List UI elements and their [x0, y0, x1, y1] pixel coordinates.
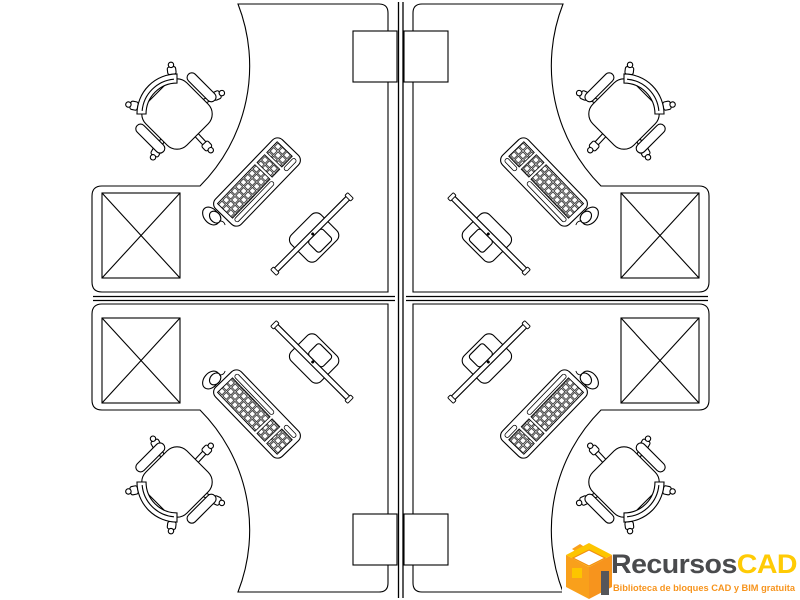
- workstation-top-right: [404, 4, 709, 292]
- workstation-bottom-left: [92, 304, 397, 592]
- brand-text: RecursosCAD: [611, 549, 797, 579]
- recursoscad-logo: RecursosCAD Biblioteca de bloques CAD y …: [562, 542, 800, 600]
- brand-text-primary: Recursos: [611, 549, 737, 579]
- logo-tagline: Biblioteca de bloques CAD y BIM gratuita: [613, 583, 796, 594]
- cad-canvas: RecursosCAD Biblioteca de bloques CAD y …: [0, 0, 800, 600]
- brand-text-accent: CAD: [737, 549, 797, 579]
- recursoscad-cube-icon: [566, 543, 612, 599]
- workstation-top-left: [92, 4, 397, 292]
